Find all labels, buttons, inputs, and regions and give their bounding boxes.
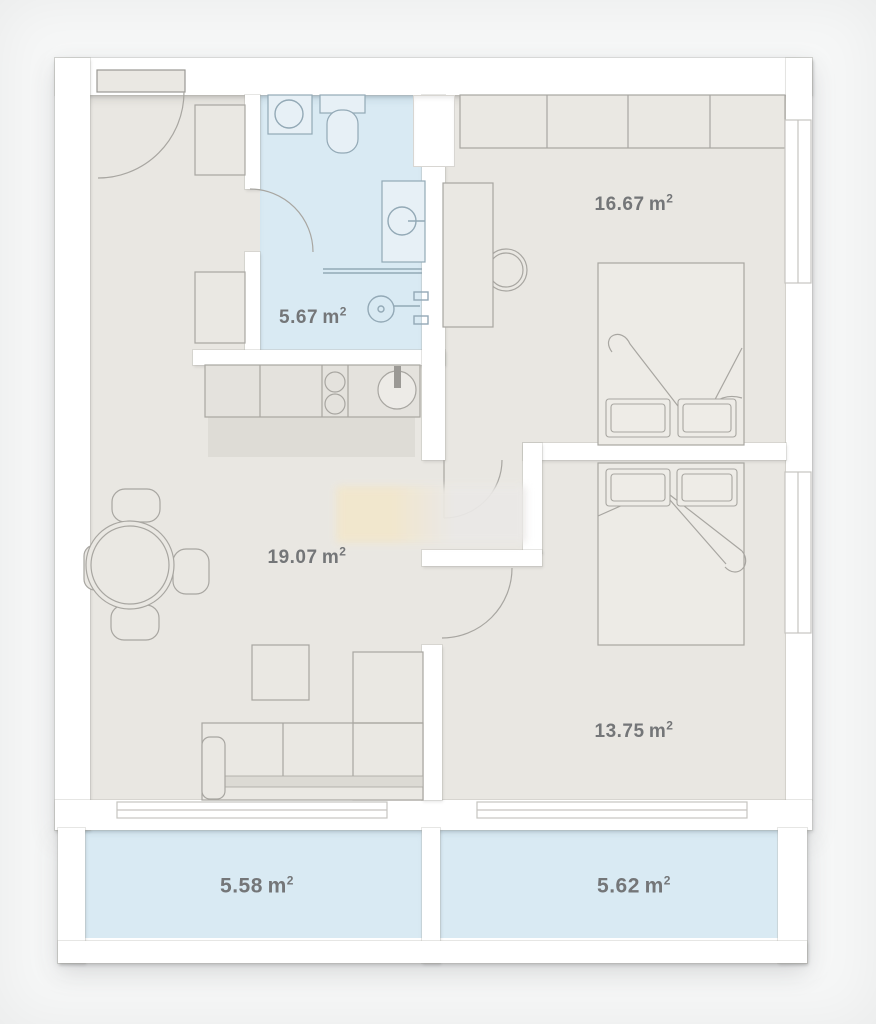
floor-plan: 16.67 m2 5.67 m2 19.07 m2 13.75 m2 5.58 … — [0, 0, 876, 1024]
area-label-living: 19.07 m2 — [268, 545, 347, 569]
washing-machine — [382, 181, 425, 262]
entrance-door — [97, 70, 185, 178]
hall-closet — [195, 105, 245, 343]
area-label-balcony-right: 5.62 m2 — [597, 874, 671, 899]
bedroom-bottom-door-arc — [442, 568, 512, 638]
area-label-bathroom: 5.67 m2 — [279, 305, 347, 329]
area-label-bedroom-bottom: 13.75 m2 — [595, 719, 674, 743]
area-label-bedroom-top: 16.67 m2 — [595, 192, 674, 216]
bathroom-door-arc — [250, 189, 313, 252]
window-bedroom-top — [785, 120, 811, 283]
toilet — [320, 95, 365, 153]
desk-and-chair — [443, 183, 527, 327]
double-bed-bottom — [598, 463, 746, 645]
balcony-door-bedroom — [477, 802, 747, 818]
dining-set — [84, 489, 209, 640]
double-bed-top — [598, 263, 744, 445]
window-bedroom-bottom — [785, 472, 811, 633]
blurred-watermark — [336, 486, 526, 543]
bathroom-sink — [268, 95, 312, 134]
sofa — [202, 652, 423, 800]
wardrobe — [460, 95, 785, 148]
area-label-balcony-left: 5.58 m2 — [220, 874, 294, 899]
coffee-table — [252, 645, 309, 700]
balcony-door-living — [117, 802, 387, 818]
